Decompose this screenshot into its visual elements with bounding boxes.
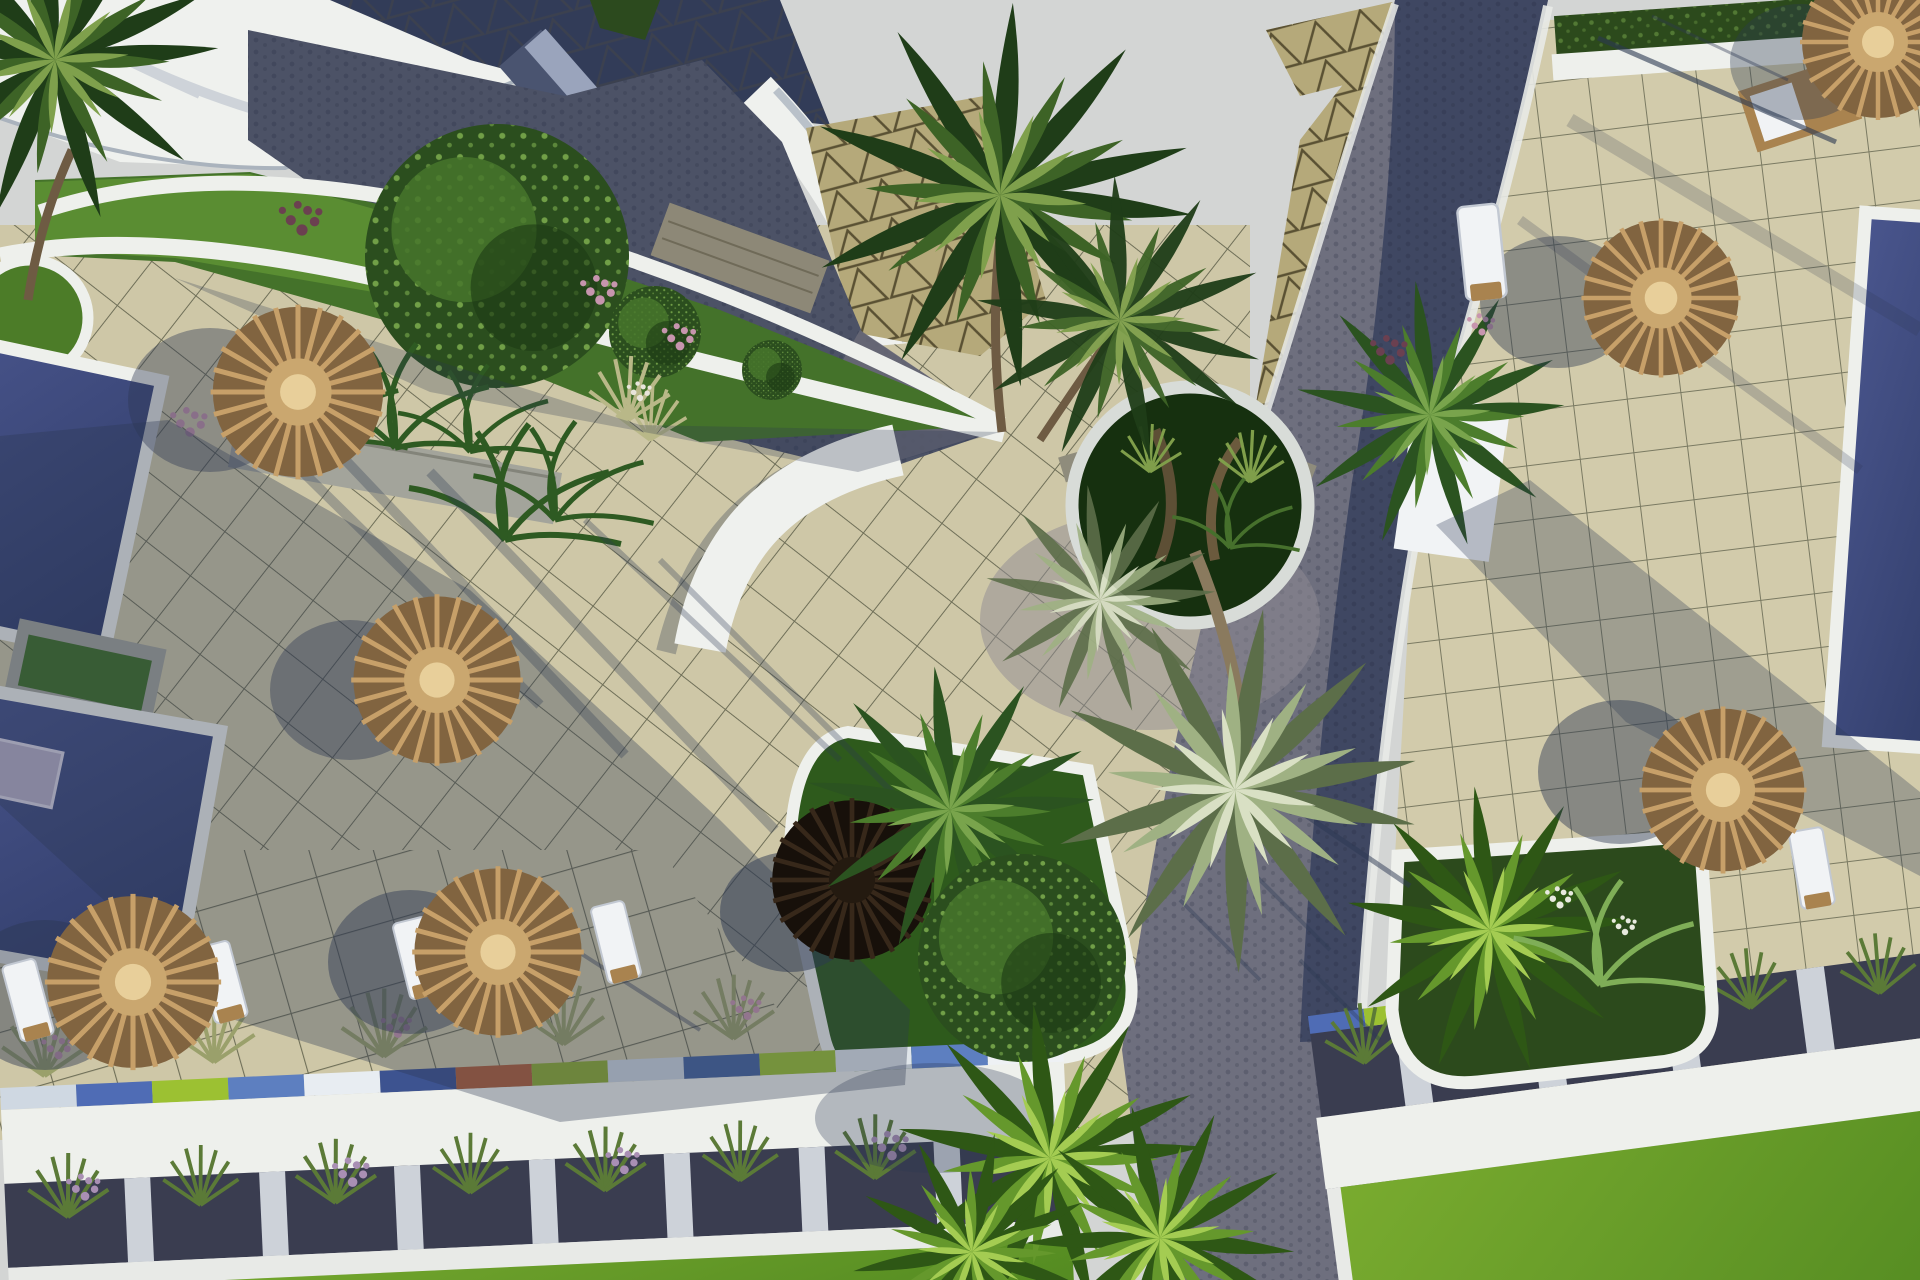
straw-parasol [351,594,523,766]
planter-tree [918,854,1126,1062]
straw-parasol [412,866,584,1038]
big-leafy-tree [365,124,629,388]
straw-parasol [211,305,386,480]
straw-parasol [45,894,221,1070]
bush [742,340,802,400]
straw-parasol [1640,707,1807,874]
render-canvas [0,0,1920,1280]
straw-parasol [1581,218,1740,377]
resort-aerial-render [0,0,1920,1280]
